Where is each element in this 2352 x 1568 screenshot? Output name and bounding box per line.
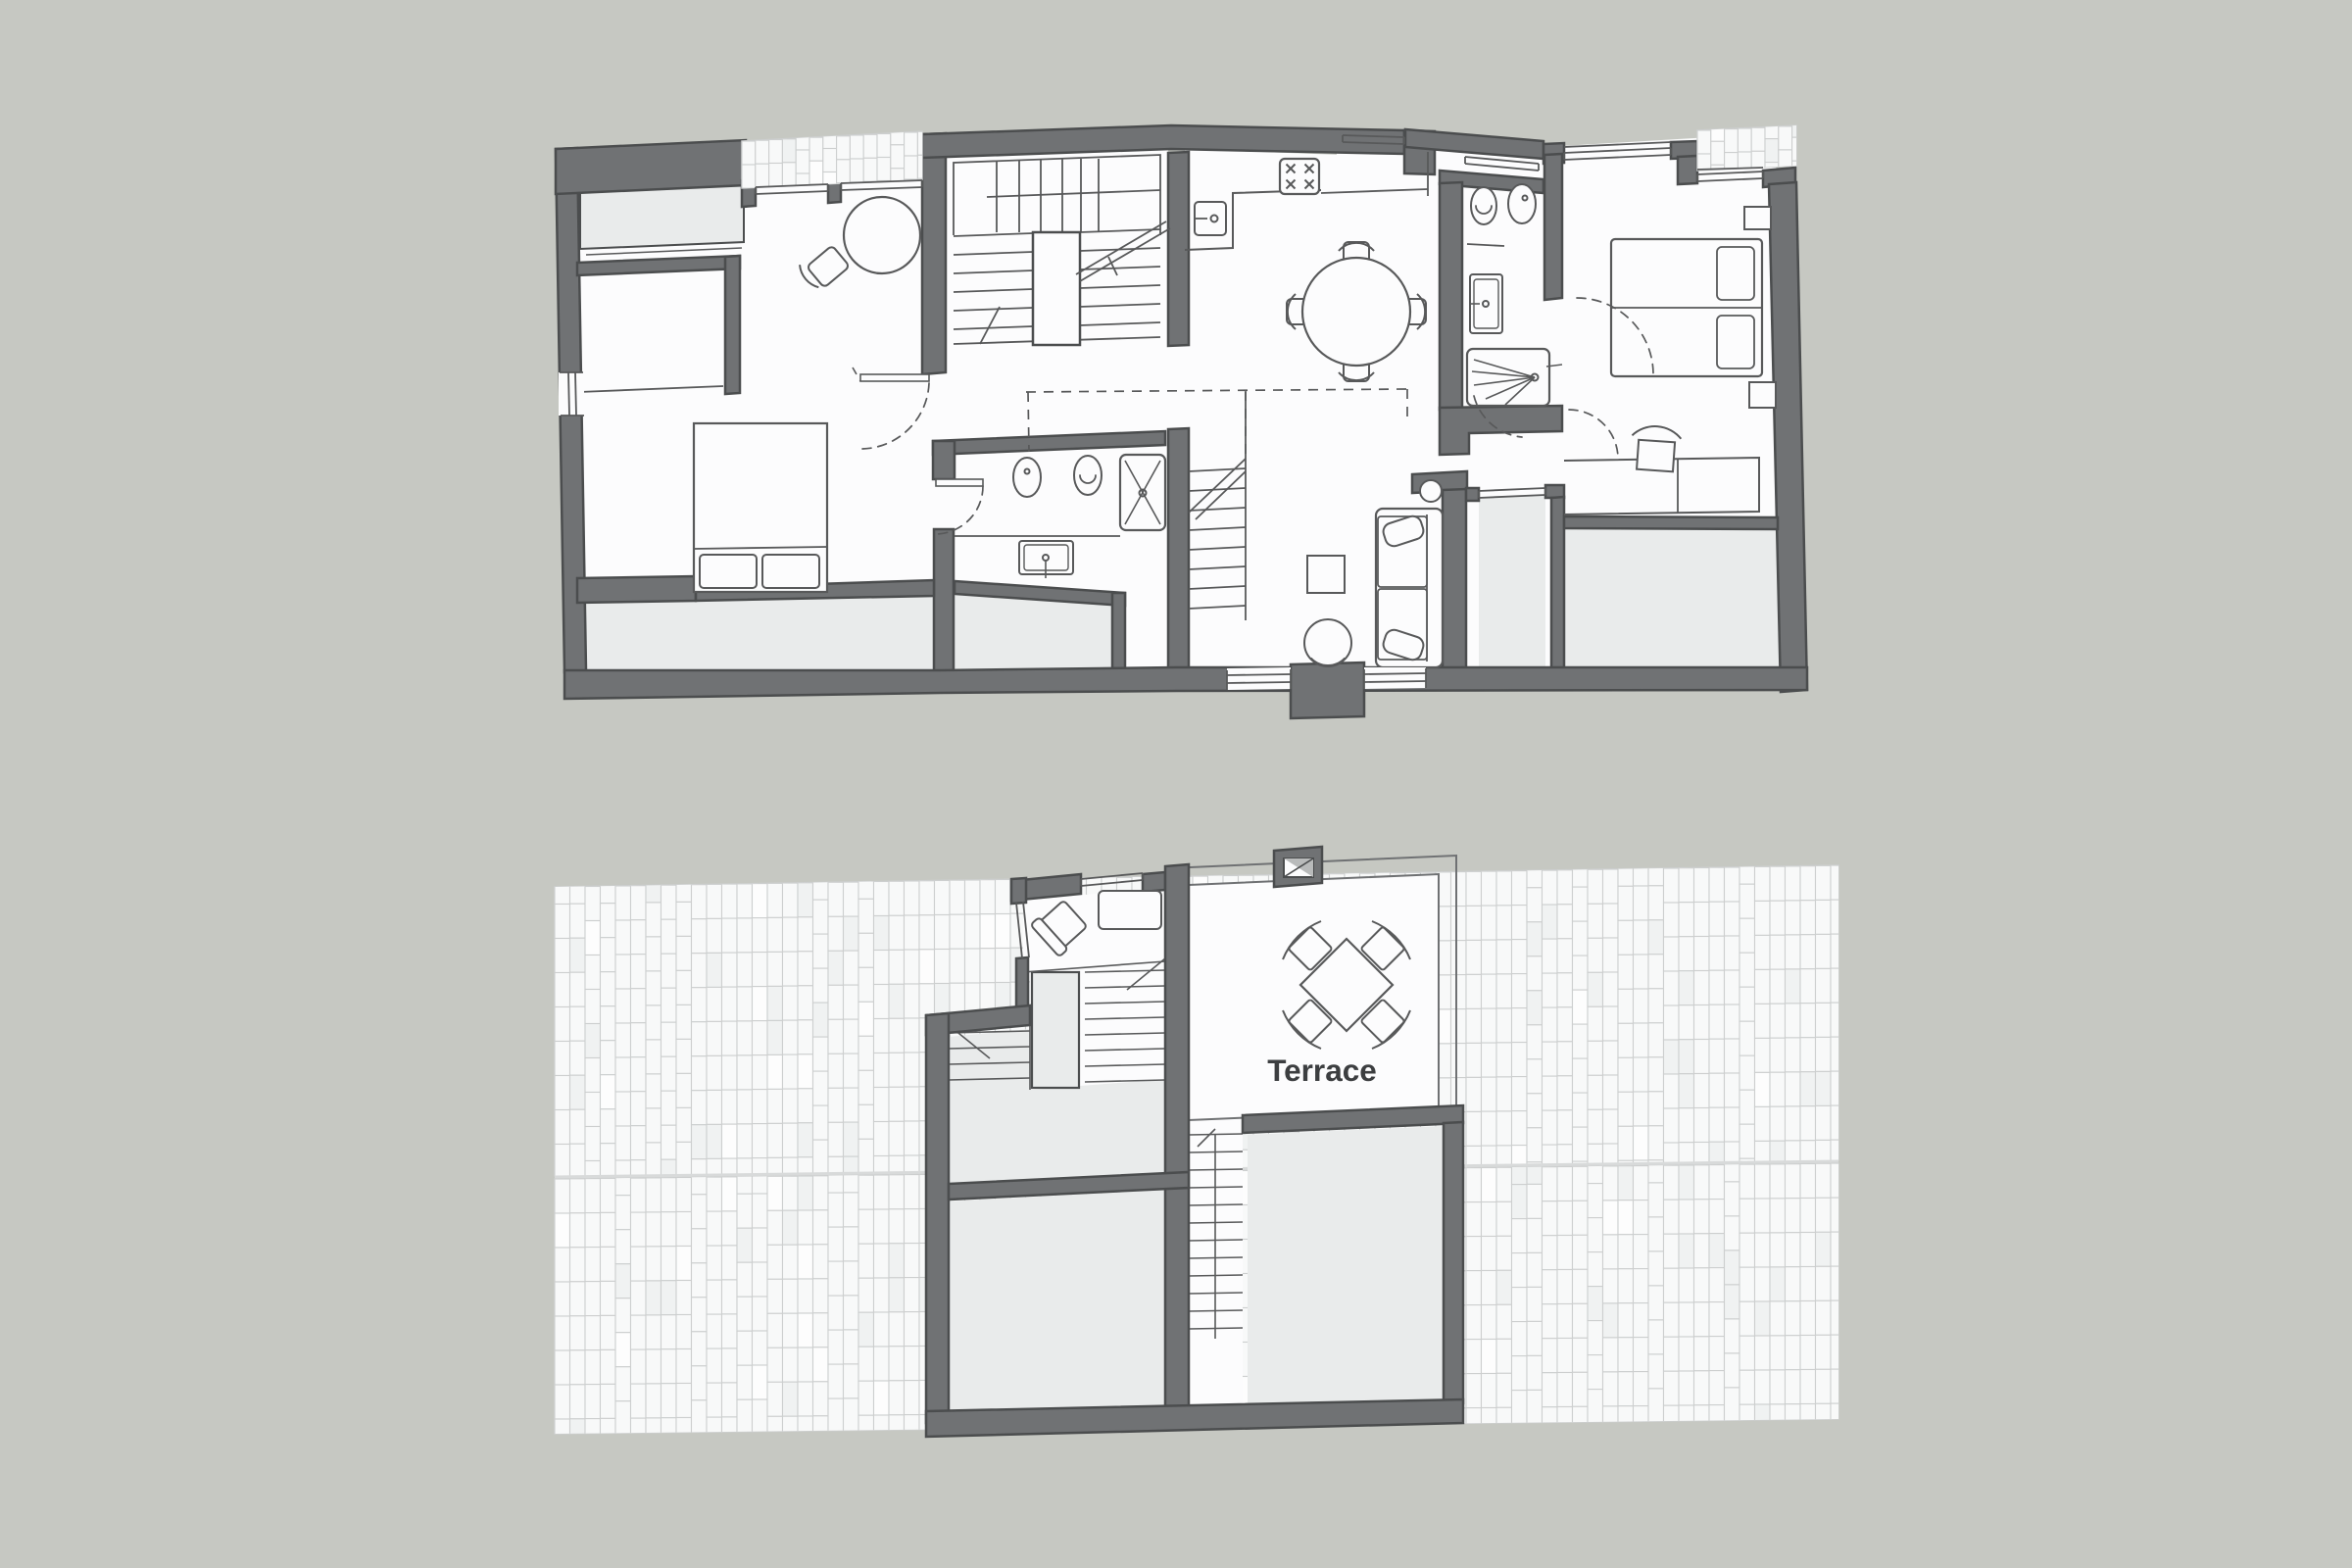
svg-text:Terrace: Terrace <box>1267 1053 1377 1088</box>
